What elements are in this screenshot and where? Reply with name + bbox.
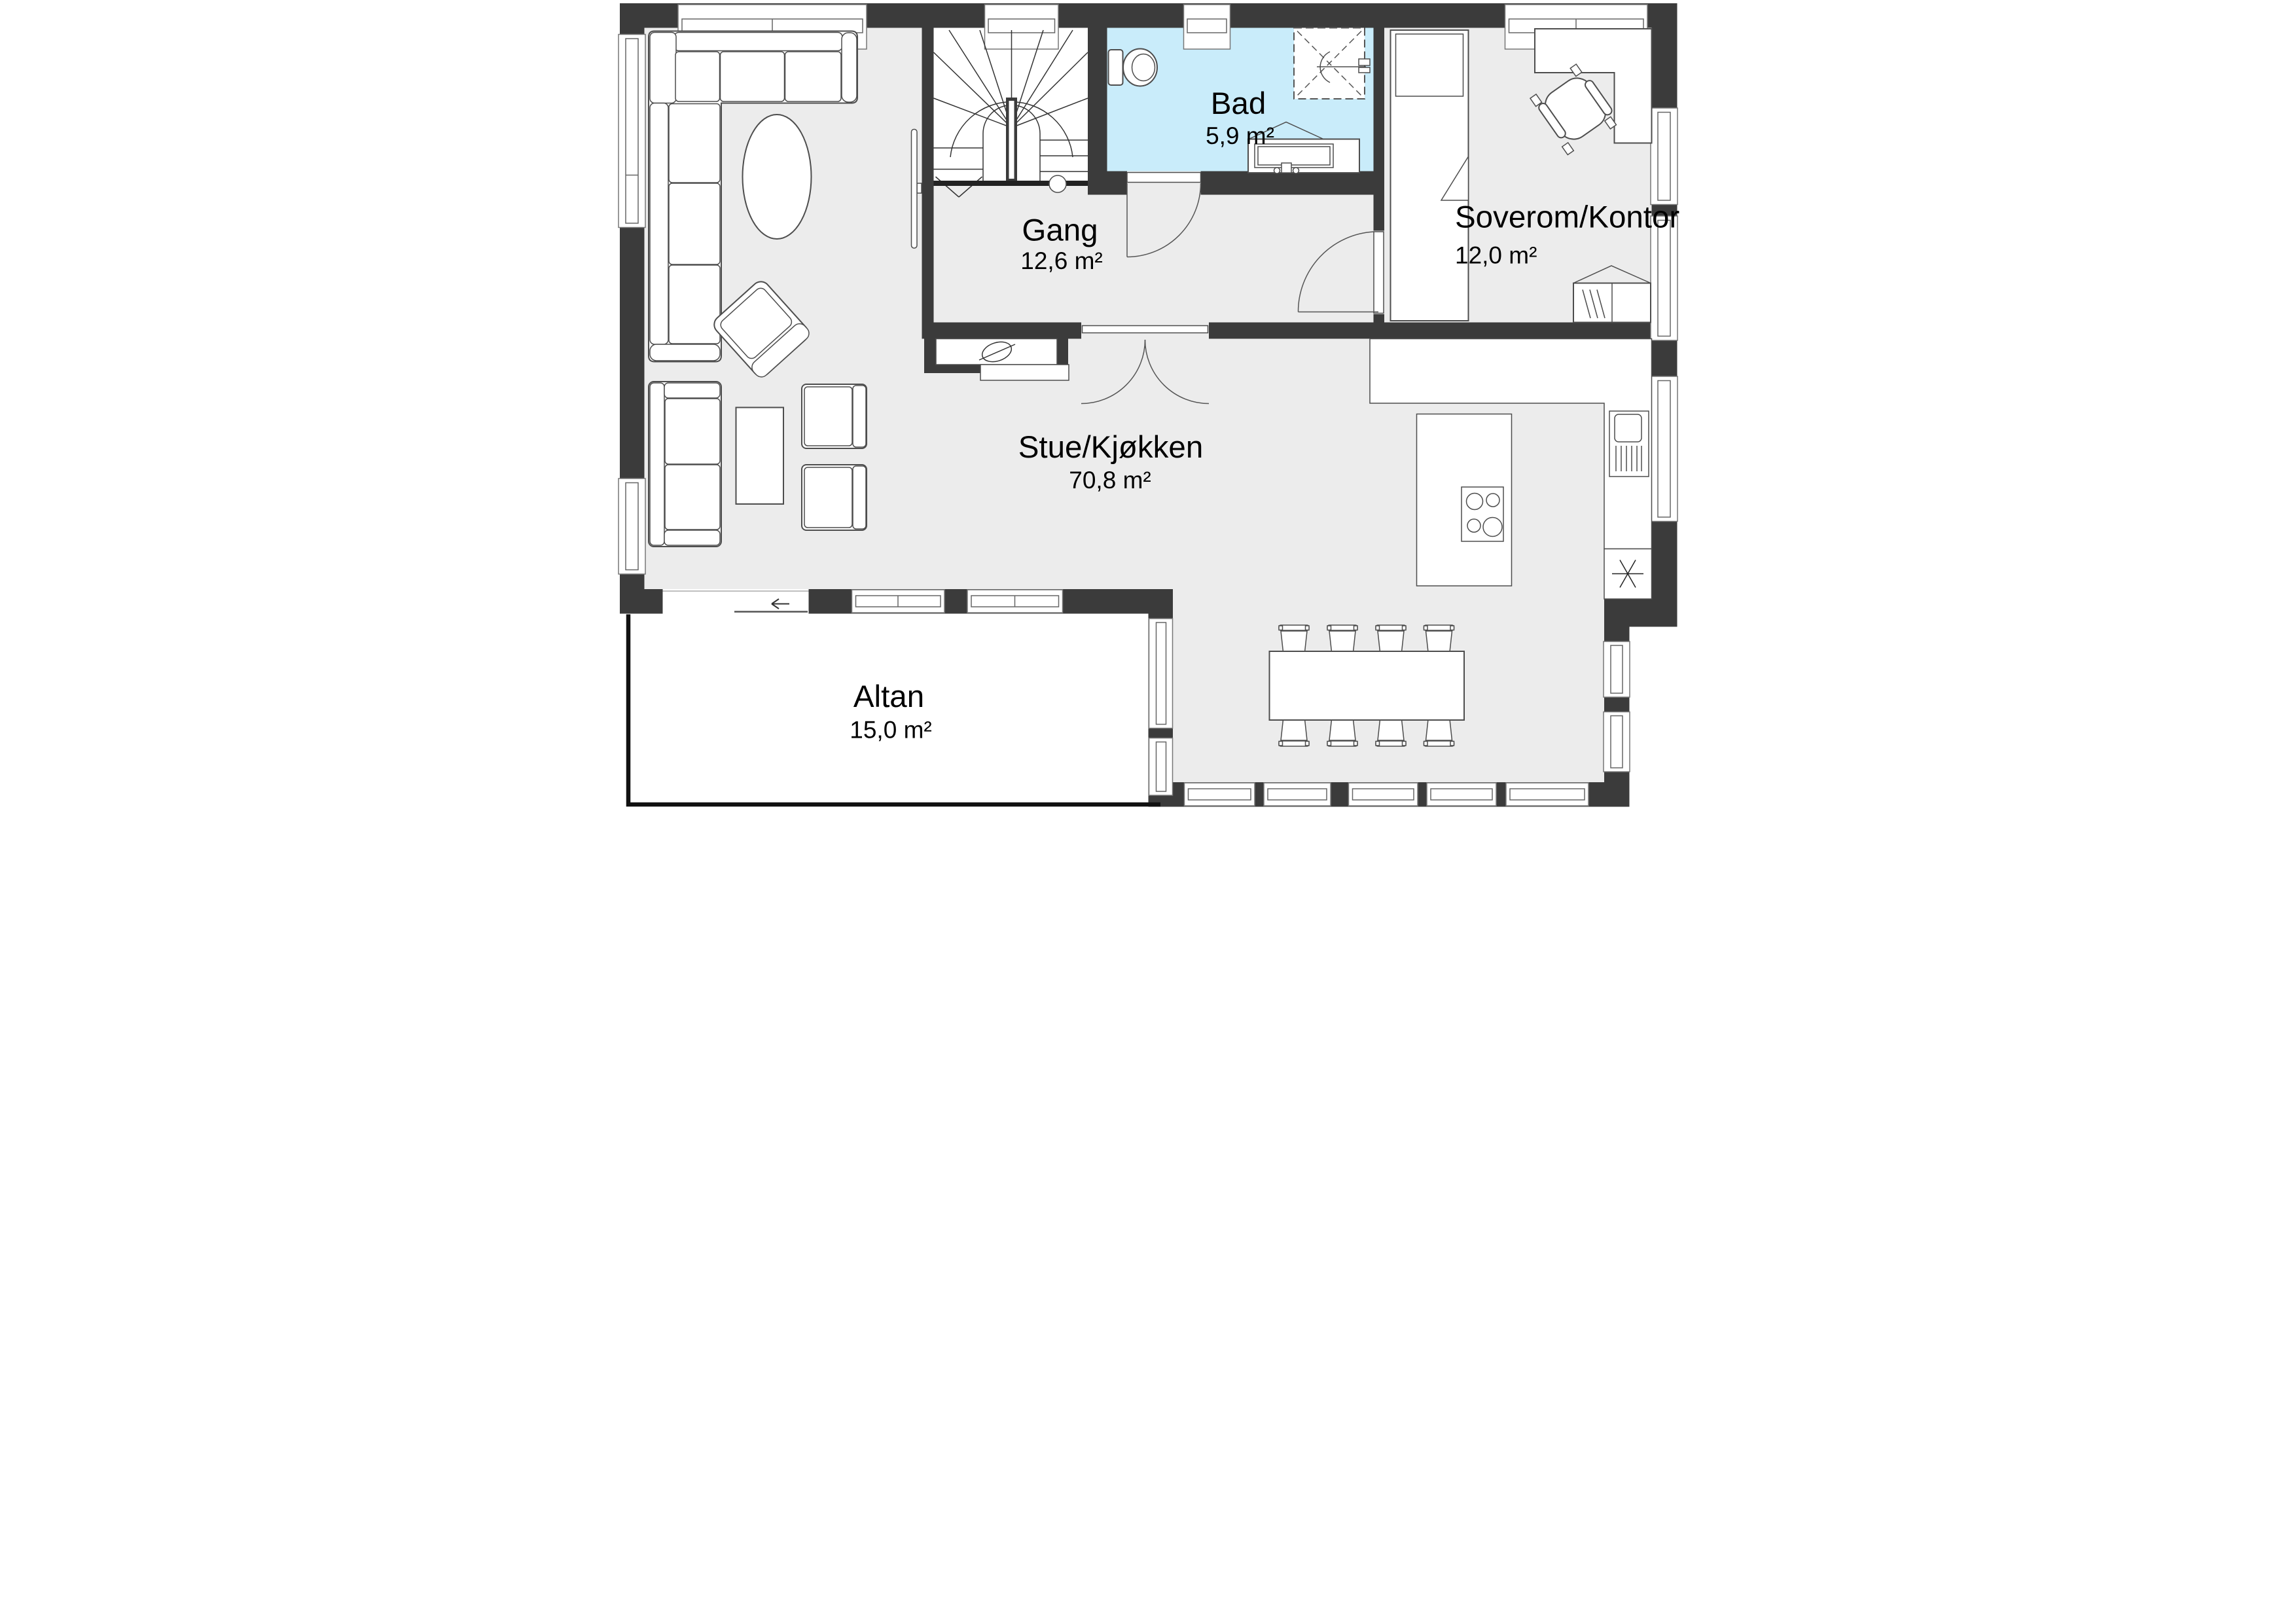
label-stue-name: Stue/Kjøkken: [1018, 430, 1204, 465]
window-top-2: [985, 5, 1059, 49]
window-top-3: [1184, 5, 1230, 49]
bed: [1391, 30, 1469, 321]
label-gang-area: 12,6 m²: [1020, 247, 1102, 274]
window-bottomleft-2: [967, 590, 1063, 613]
floor-plan-drawing: Stue/Kjøkken 70,8 m² Gang 12,6 m² Bad 5,…: [574, 0, 1722, 812]
dining-chair: [1376, 625, 1406, 653]
wall-bad-bottom-a: [1107, 171, 1128, 195]
round-rug: [743, 115, 812, 239]
window-right-3: [1651, 376, 1677, 522]
window-lower-right-2: [1604, 712, 1630, 772]
window-bottom-4: [1427, 783, 1496, 806]
window-left-2: [619, 478, 645, 574]
window-altan-1: [1149, 619, 1173, 729]
toilet: [1109, 49, 1158, 86]
entrance-door: [663, 589, 809, 614]
wall-stair-bad: [1088, 28, 1107, 195]
wall-right-jog: [1604, 599, 1677, 627]
dining-chair: [1424, 718, 1454, 746]
window-right-1: [1651, 108, 1677, 205]
label-altan-area: 15,0 m²: [850, 717, 931, 744]
dining-chair: [1376, 718, 1406, 746]
label-bad-area: 5,9 m²: [1206, 122, 1274, 149]
shower: [1294, 28, 1370, 99]
dining-chair: [1279, 625, 1309, 653]
label-soverom-name: Soverom/Kontor: [1455, 200, 1679, 235]
dining-table: [1270, 651, 1465, 720]
floor-plan-page: Stue/Kjøkken 70,8 m² Gang 12,6 m² Bad 5,…: [574, 0, 1722, 812]
coffee-table: [736, 408, 784, 505]
window-bottom-3: [1349, 783, 1418, 806]
dining-chair: [1327, 625, 1357, 653]
label-soverom-area: 12,0 m²: [1455, 242, 1537, 269]
window-bottom-1: [1185, 783, 1255, 806]
wall-gang-west: [922, 28, 934, 339]
window-bottom-2: [1264, 783, 1331, 806]
label-bad-name: Bad: [1211, 86, 1266, 121]
label-altan-name: Altan: [853, 679, 924, 714]
window-right-2: [1651, 216, 1677, 340]
wall-bad-bottom-b: [1201, 171, 1374, 195]
dining-chair: [1327, 718, 1357, 746]
wall-south-b: [1209, 323, 1652, 339]
kitchen-island: [1417, 414, 1512, 586]
label-stue-area: 70,8 m²: [1069, 467, 1151, 494]
kitchen-sink: [1609, 411, 1649, 477]
wall-bad-soverom: [1374, 28, 1385, 231]
sofa-two: [649, 382, 721, 547]
window-altan-2: [1149, 738, 1173, 796]
armchair-2: [802, 465, 867, 530]
freezer: [1604, 549, 1652, 600]
dining-chair: [1279, 718, 1309, 746]
stair-newel: [1049, 175, 1066, 192]
window-bottomleft-1: [852, 590, 945, 613]
shower-valve-icon: [1359, 59, 1370, 65]
window-lower-right-1: [1604, 641, 1630, 697]
window-bottom-5: [1506, 783, 1588, 806]
wall-south-a: [922, 323, 1082, 339]
label-gang-name: Gang: [1022, 213, 1098, 248]
armchair-1: [802, 384, 867, 448]
window-left-1: [619, 35, 645, 228]
dining-chair: [1424, 625, 1454, 653]
